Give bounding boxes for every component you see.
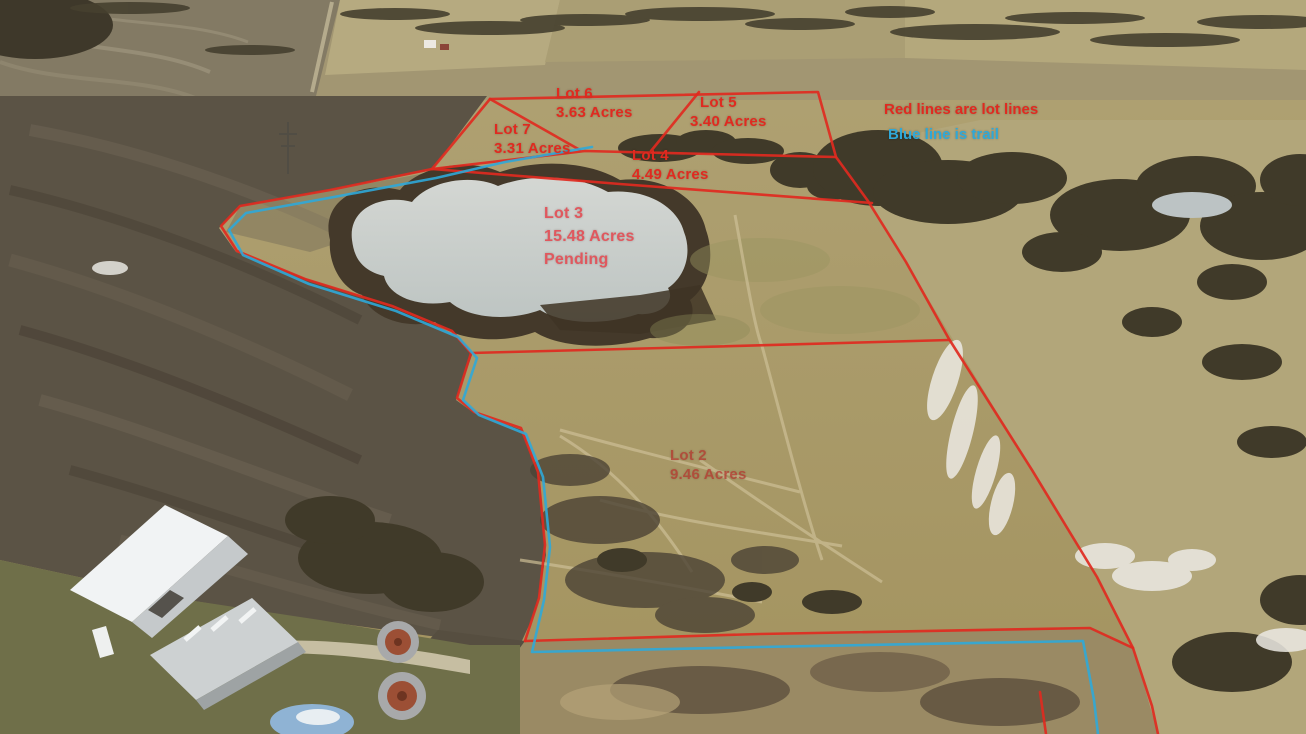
aerial-photo-art xyxy=(0,0,1306,734)
lot5-acres: 3.40 Acres xyxy=(690,112,767,131)
lot7-name: Lot 7 xyxy=(494,120,571,139)
lot2-acres: 9.46 Acres xyxy=(670,465,747,484)
lot2-name: Lot 2 xyxy=(670,446,747,465)
lot7-acres: 3.31 Acres xyxy=(494,139,571,158)
lot4-acres: 4.49 Acres xyxy=(632,165,709,184)
lot6-label: Lot 6 3.63 Acres xyxy=(556,84,633,122)
lot3-name: Lot 3 xyxy=(544,202,635,225)
lot5-name: Lot 5 xyxy=(700,93,767,112)
lot5-label: Lot 5 3.40 Acres xyxy=(700,93,767,131)
lot6-name: Lot 6 xyxy=(556,84,633,103)
legend-blue-note: Blue line is trail xyxy=(888,126,999,143)
legend-red-note: Red lines are lot lines xyxy=(884,101,1038,118)
lot4-name: Lot 4 xyxy=(632,146,709,165)
lot4-label: Lot 4 4.49 Acres xyxy=(632,146,709,184)
lot3-acres: 15.48 Acres xyxy=(544,225,635,248)
lot2-label: Lot 2 9.46 Acres xyxy=(670,446,747,484)
distant-fields xyxy=(0,0,1306,100)
lot3-label: Lot 3 15.48 Acres Pending xyxy=(544,202,635,271)
lot3-status: Pending xyxy=(544,248,635,271)
distant-pond xyxy=(1152,192,1232,218)
lot7-label: Lot 7 3.31 Acres xyxy=(494,120,571,158)
aerial-lot-map-photo: Lot 6 3.63 Acres Lot 5 3.40 Acres Lot 7 … xyxy=(0,0,1306,734)
